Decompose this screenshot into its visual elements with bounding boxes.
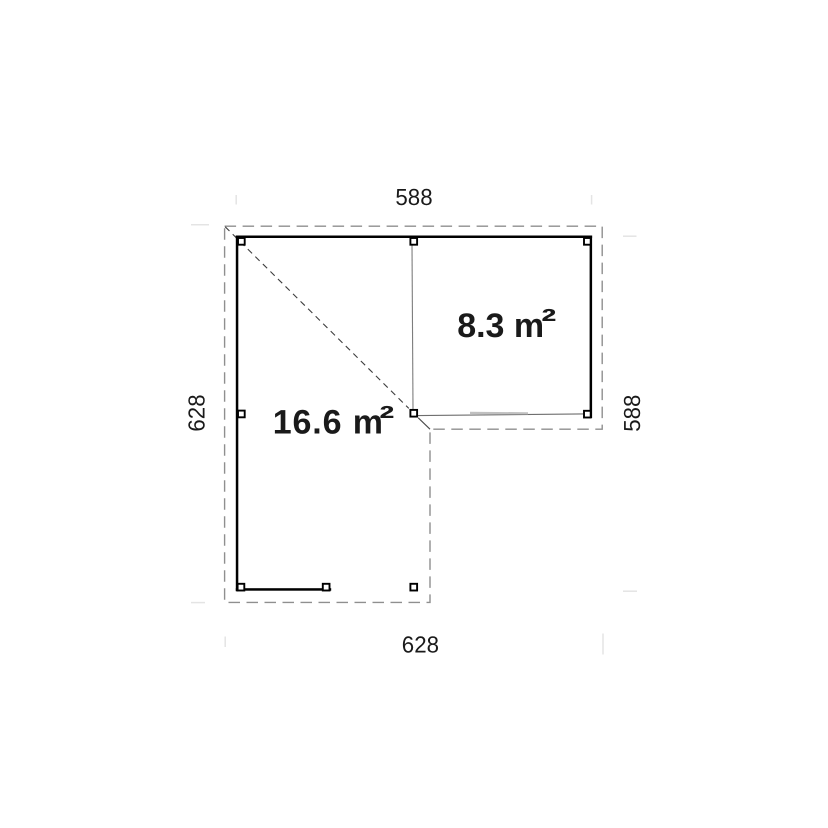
svg-text:16.6 m: 16.6 m: [273, 403, 384, 441]
svg-text:8.3 m: 8.3 m: [457, 307, 544, 345]
svg-text:628: 628: [184, 394, 210, 431]
svg-text:588: 588: [619, 395, 645, 432]
svg-text:588: 588: [395, 184, 432, 210]
svg-text:²: ²: [379, 399, 394, 437]
svg-text:²: ²: [541, 303, 556, 341]
svg-text:628: 628: [402, 631, 439, 657]
